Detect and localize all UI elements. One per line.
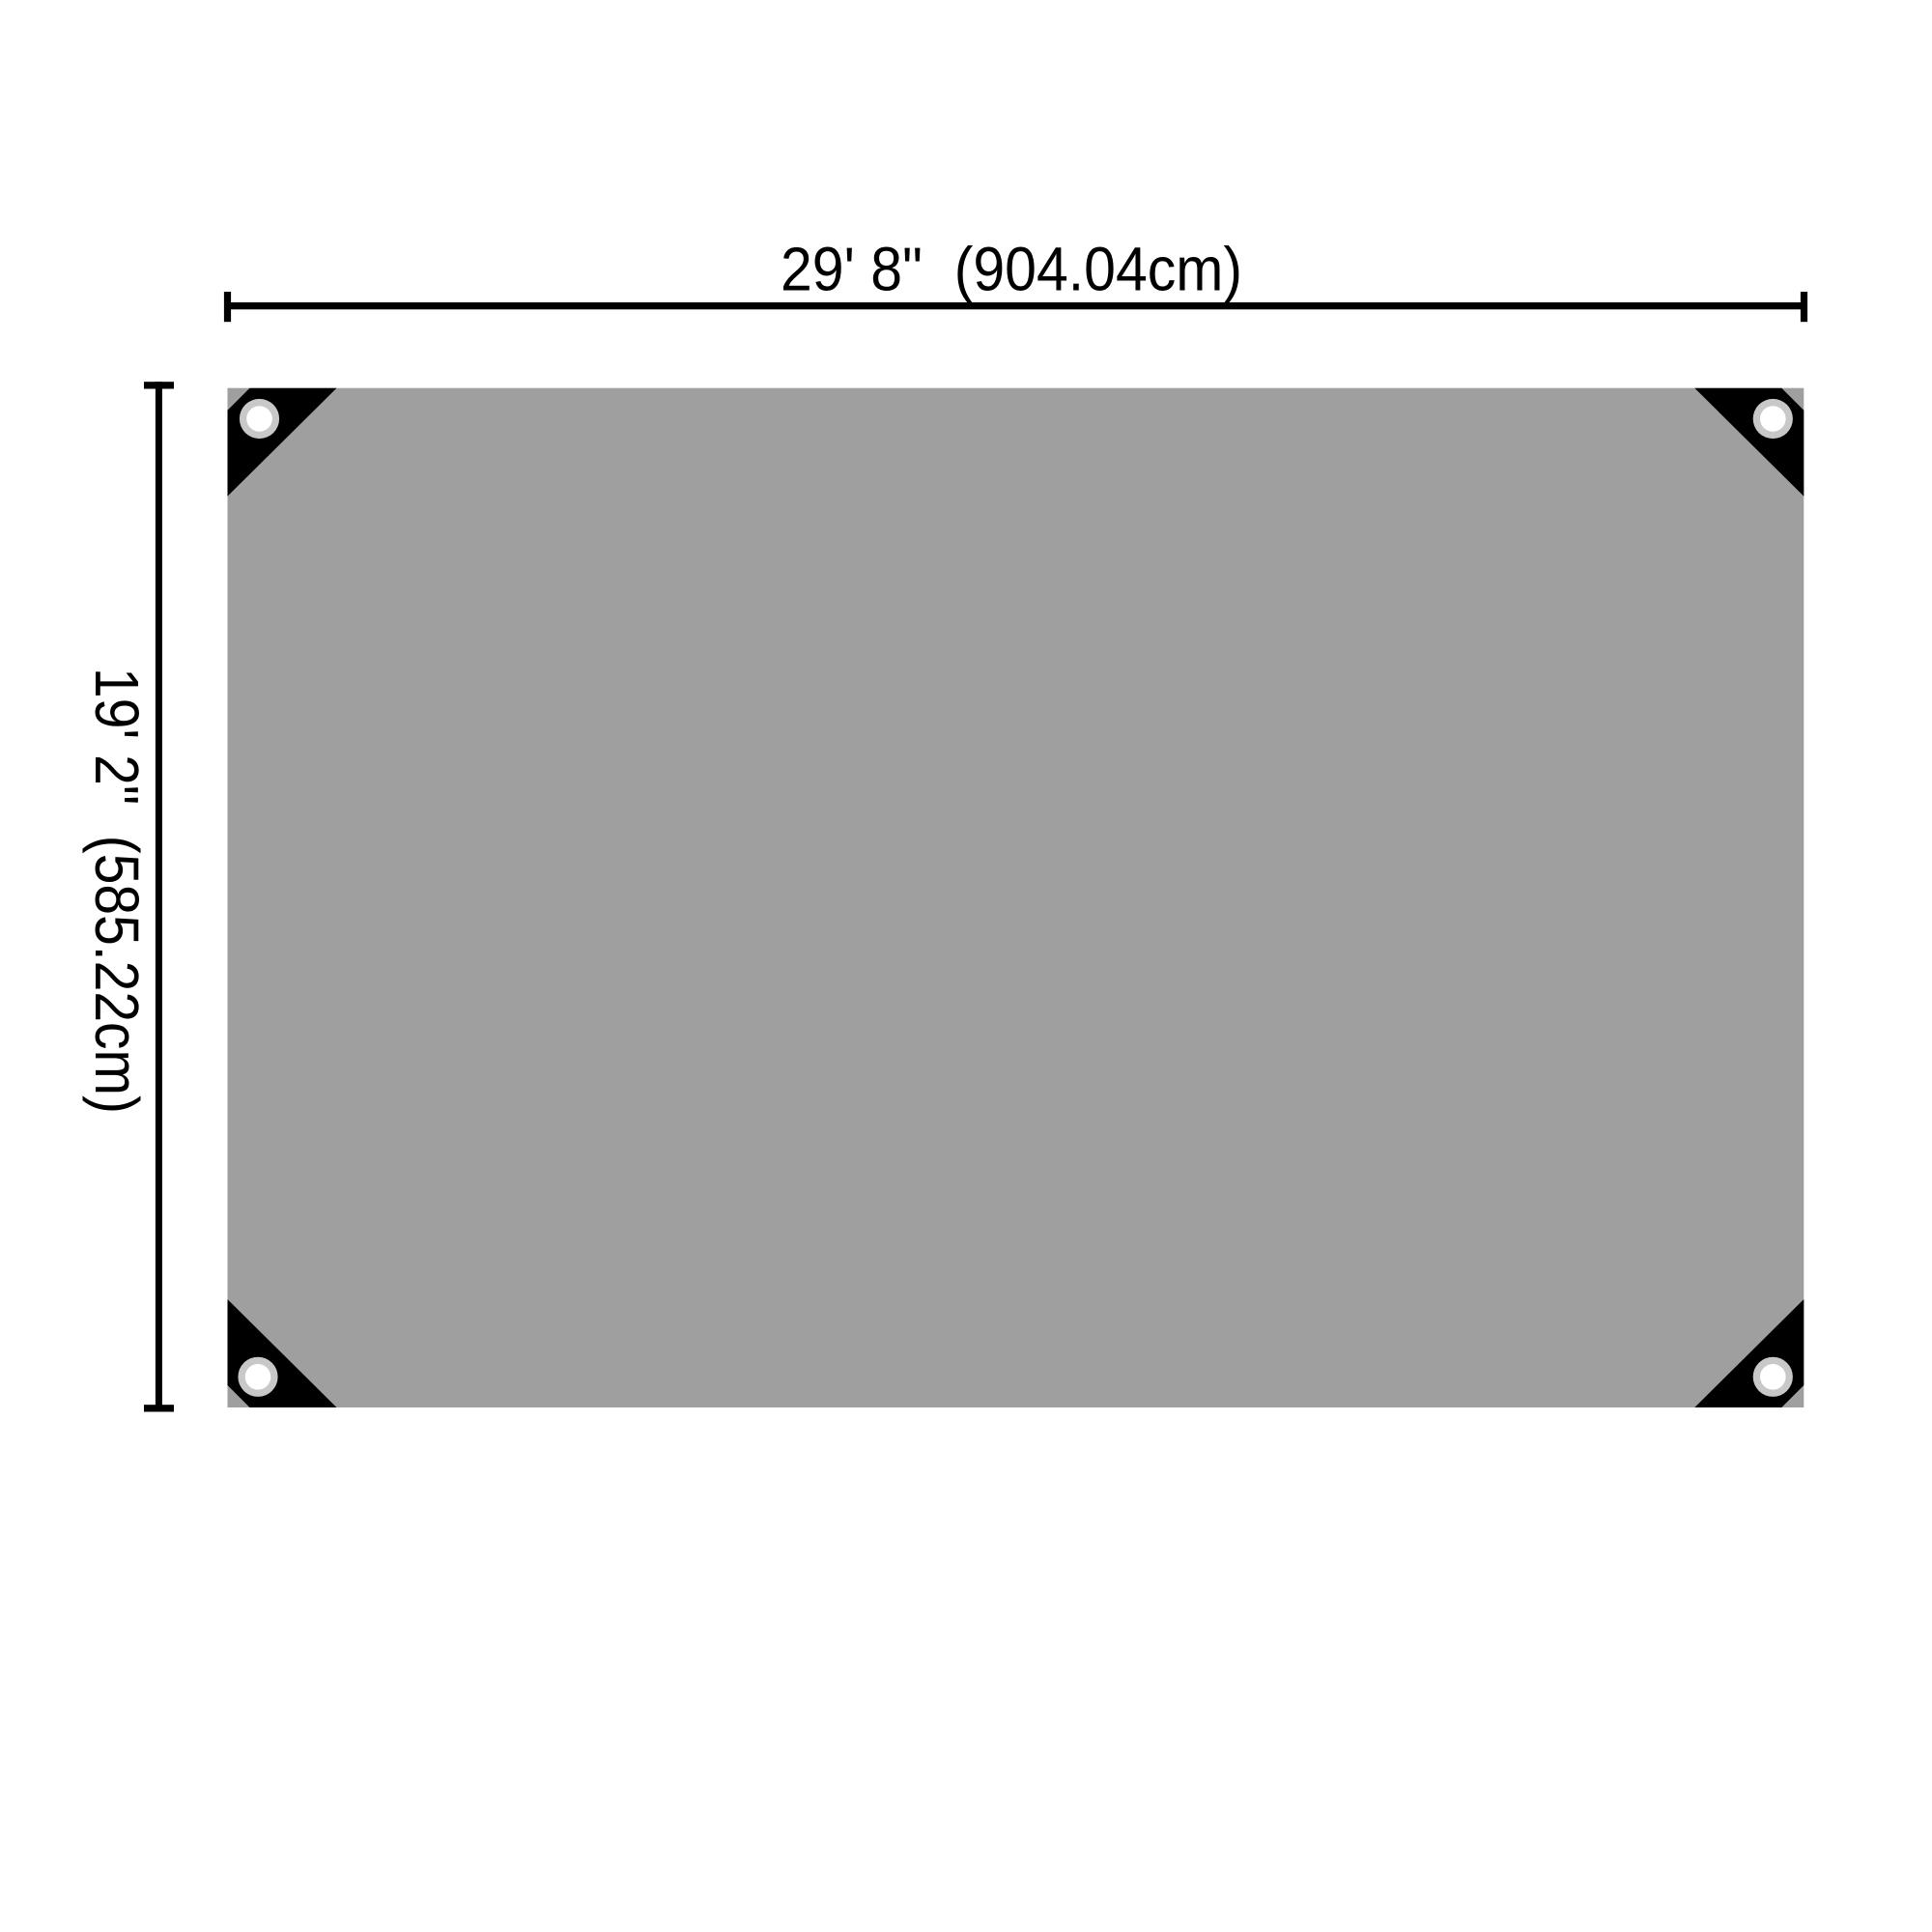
svg-text:19' 2" (585.22cm): 19' 2" (585.22cm)	[82, 668, 152, 1114]
svg-text:29' 8" (904.04cm): 29' 8" (904.04cm)	[781, 235, 1242, 304]
